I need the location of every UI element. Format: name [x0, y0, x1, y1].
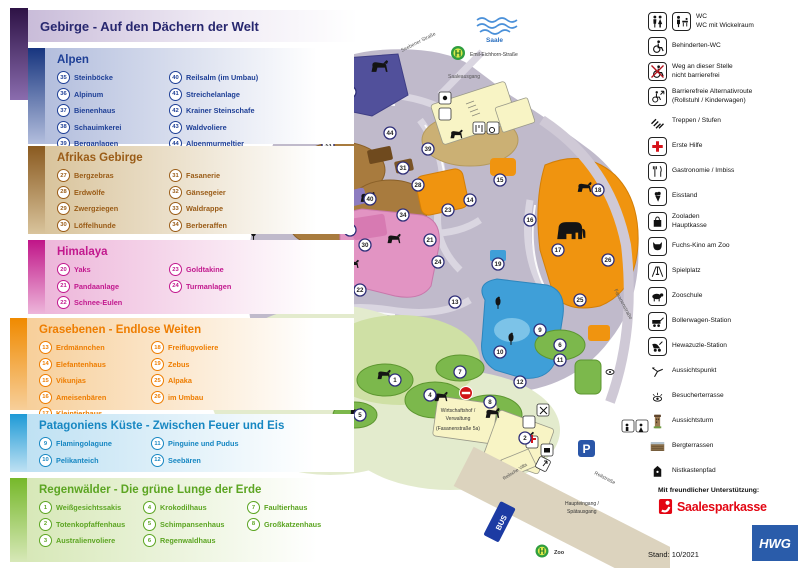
- stroller-icon: [648, 337, 667, 356]
- section-stripe: [28, 240, 45, 314]
- wc-icon: [648, 12, 667, 31]
- sparkasse-s-icon: [658, 498, 673, 515]
- facility-legend-row: Aussichtsturm: [648, 412, 798, 431]
- legend-item-3: 3Australienvoliere: [39, 534, 143, 547]
- section-title: Regenwälder - Die grüne Lunge der Erde: [39, 484, 351, 496]
- map-marker-26: 26: [602, 254, 614, 266]
- svg-text:11: 11: [557, 357, 564, 364]
- svg-text:19: 19: [495, 261, 502, 268]
- facility-legend-label: Zooschule: [672, 292, 702, 300]
- map-marker-9: 9: [534, 324, 546, 336]
- item-label: Erdmännchen: [56, 343, 105, 352]
- item-number-badge: 36: [57, 88, 70, 101]
- svg-text:H: H: [455, 48, 462, 58]
- item-number-badge: 30: [57, 219, 70, 232]
- svg-text:23: 23: [445, 207, 452, 214]
- bus-stop-icon: BUS: [483, 501, 515, 543]
- legend-item-28: 28Erdwölfe: [57, 186, 169, 199]
- map-marker-40: 40: [364, 193, 376, 205]
- facility-legend-label: Aussichtspunkt: [672, 367, 716, 375]
- item-number-badge: 43: [169, 121, 182, 134]
- facility-legend-label: Barrierefreie Alternativroute(Rollstuhl …: [672, 88, 752, 104]
- playground-icon: [648, 262, 667, 281]
- svg-text:17: 17: [555, 247, 562, 254]
- item-number-badge: 4: [143, 501, 156, 514]
- map-marker-19: 19: [492, 258, 504, 270]
- viewpoint-icon: [648, 362, 667, 381]
- svg-text:9: 9: [538, 327, 542, 334]
- item-number-badge: 22: [57, 296, 70, 309]
- svg-text:4: 4: [428, 392, 432, 399]
- item-number-badge: 18: [151, 341, 164, 354]
- section-title: Himalaya: [57, 246, 348, 258]
- first-aid-icon: [648, 137, 667, 156]
- item-label: Ameisenbären: [56, 393, 106, 402]
- map-marker-18: 18: [592, 184, 604, 196]
- item-number-badge: 5: [143, 518, 156, 531]
- wheelchair-icon: [648, 37, 667, 56]
- legend-item-19: 19Zebus: [151, 358, 263, 371]
- item-label: Seebären: [168, 456, 201, 465]
- map-version-stand: Stand: 10/2021: [648, 550, 699, 559]
- svg-text:5: 5: [358, 412, 362, 419]
- svg-text:1: 1: [393, 377, 397, 384]
- item-number-badge: 1: [39, 501, 52, 514]
- legend-item-36: 36Alpinum: [57, 88, 169, 101]
- facility-legend-label: Fuchs-Kino am Zoo: [672, 242, 730, 250]
- legend-item-41: 41Streichelanlage: [169, 88, 281, 101]
- map-marker-25: 25: [574, 294, 586, 306]
- facility-legend-label: Hewazuzle-Station: [672, 342, 727, 350]
- zooschule-icon: [648, 287, 667, 306]
- item-label: Großkatzenhaus: [264, 520, 321, 529]
- item-number-badge: 15: [39, 374, 52, 387]
- map-marker-31: 31: [397, 162, 409, 174]
- item-label: Totenkopfaffenhaus: [56, 520, 125, 529]
- map-marker-22: 22: [354, 284, 366, 296]
- sparkasse-logo: Saalesparkasse: [658, 498, 798, 515]
- svg-text:18: 18: [595, 187, 602, 194]
- item-label: Pandaanlage: [74, 282, 119, 291]
- item-number-badge: 19: [151, 358, 164, 371]
- legend-item-12: 12Seebären: [151, 454, 263, 467]
- map-marker-4: 4: [424, 389, 436, 401]
- item-label: Zwergziegen: [74, 204, 118, 213]
- svg-text:2: 2: [523, 435, 527, 442]
- svg-text:25: 25: [577, 297, 584, 304]
- tram-stop-icon-bottom: H: [536, 545, 549, 558]
- item-number-badge: 2: [39, 518, 52, 531]
- item-number-badge: 9: [39, 437, 52, 450]
- item-label: Regenwaldhaus: [160, 536, 216, 545]
- map-marker-28: 28: [412, 179, 424, 191]
- svg-text:H: H: [539, 547, 545, 556]
- item-number-badge: 10: [39, 454, 52, 467]
- item-label: Pinguine und Pudus: [168, 439, 239, 448]
- legend-item-16: 16Ameisenbären: [39, 391, 151, 404]
- facility-legend-row: Erste Hilfe: [648, 137, 798, 156]
- item-number-badge: 35: [57, 71, 70, 84]
- map-marker-15: 15: [494, 174, 506, 186]
- map-marker-16: 16: [524, 214, 536, 226]
- section-title: Grasebenen - Endlose Weiten: [39, 324, 348, 336]
- facility-legend-row: Nistkastenpfad: [648, 462, 798, 481]
- item-number-badge: 7: [247, 501, 260, 514]
- facility-legend-label: Aussichtsturm: [672, 417, 713, 425]
- item-label: Zebus: [168, 360, 190, 369]
- item-number-badge: 42: [169, 104, 182, 117]
- facility-legend-row: Behinderten-WC: [648, 37, 798, 56]
- section-title: Alpen: [57, 54, 348, 66]
- item-label: Schnee-Eulen: [74, 298, 122, 307]
- wirtschaftshof-label-3: (Fasanenstraße 5a): [436, 426, 480, 432]
- item-label: Erdwölfe: [74, 188, 105, 197]
- map-marker-12: 12: [514, 376, 526, 388]
- svg-text:7: 7: [458, 369, 462, 376]
- map-marker-17: 17: [552, 244, 564, 256]
- map-marker-8: 8: [484, 396, 496, 408]
- item-label: Schimpansenhaus: [160, 520, 224, 529]
- terrace-icon: [648, 387, 667, 406]
- legend-item-29: 29Zwergziegen: [57, 202, 169, 215]
- item-number-badge: 31: [169, 169, 182, 182]
- map-marker-1: 1: [389, 374, 401, 386]
- map-marker-6: 6: [554, 339, 566, 351]
- svg-text:22: 22: [357, 287, 364, 294]
- facility-legend-label: WCWC mit Wickelraum: [696, 13, 754, 29]
- tram-stop-top-label: Emil-Eichhorn-Straße: [470, 52, 518, 58]
- svg-text:P: P: [582, 442, 590, 456]
- no-wheelchair-icon: [648, 62, 667, 81]
- icecream-icon: [648, 187, 667, 206]
- svg-text:12: 12: [517, 379, 524, 386]
- item-number-badge: 24: [169, 280, 182, 293]
- svg-text:15: 15: [497, 177, 504, 184]
- item-number-badge: 33: [169, 202, 182, 215]
- facility-legend-row: ZooladenHauptkasse: [648, 212, 798, 231]
- svg-text:28: 28: [415, 182, 422, 189]
- item-number-badge: 32: [169, 186, 182, 199]
- page-title: Gebirge - Auf den Dächern der Welt: [40, 19, 259, 34]
- main-entrance-label-2: Spätausgang: [567, 509, 597, 515]
- section-card-alpen: Alpen35Steinböcke36Alpinum37Bienenhaus38…: [28, 48, 354, 144]
- facility-legend-label: Nistkastenpfad: [672, 467, 716, 475]
- item-label: Fasanerie: [186, 171, 220, 180]
- legend-item-9: 9Flamingolagune: [39, 437, 151, 450]
- item-number-badge: 23: [169, 263, 182, 276]
- svg-text:30: 30: [362, 242, 369, 249]
- legend-item-40: 40Reilsalm (im Umbau): [169, 71, 281, 84]
- legend-item-35: 35Steinböcke: [57, 71, 169, 84]
- item-number-badge: 29: [57, 202, 70, 215]
- item-label: Streichelanlage: [186, 90, 240, 99]
- item-label: Elefantenhaus: [56, 360, 106, 369]
- header-stripe: [10, 8, 28, 100]
- legend-item-24: 24Turmanlagen: [169, 280, 281, 293]
- item-label: Faultierhaus: [264, 503, 307, 512]
- item-number-badge: 41: [169, 88, 182, 101]
- facility-legend-label: Behinderten-WC: [672, 42, 721, 50]
- section-stripe: [10, 318, 27, 410]
- map-marker-10: 10: [494, 346, 506, 358]
- item-label: Waldvoliere: [186, 123, 227, 132]
- legend-item-11: 11Pinguine und Pudus: [151, 437, 263, 450]
- item-number-badge: 28: [57, 186, 70, 199]
- stairs-icon: [648, 112, 667, 131]
- item-label: Freiflugvoliere: [168, 343, 218, 352]
- wc-wickel-icon: [672, 12, 691, 31]
- exit-top-label: Saaleausgang: [448, 74, 480, 80]
- facility-legend-label: Gastronomie / Imbiss: [672, 167, 734, 175]
- legend-item-1: 1Weißgesichtssakis: [39, 501, 143, 514]
- legend-item-18: 18Freiflugvoliere: [151, 341, 263, 354]
- facility-legend-row: WCWC mit Wickelraum: [648, 12, 798, 31]
- item-number-badge: 3: [39, 534, 52, 547]
- map-marker-5: 5: [354, 409, 366, 421]
- item-number-badge: 16: [39, 391, 52, 404]
- section-card-patagonien: Patagoniens Küste - Zwischen Feuer und E…: [10, 414, 354, 472]
- svg-text:13: 13: [452, 299, 459, 306]
- item-label: Bergzebras: [74, 171, 114, 180]
- legend-item-2: 2Totenkopfaffenhaus: [39, 518, 143, 531]
- section-card-himalaya: Himalaya20Yaks21Pandaanlage22Schnee-Eule…: [28, 240, 354, 314]
- wirtschaftshof-label-1: Wirtschaftshof /: [441, 408, 476, 414]
- item-label: Löffelhunde: [74, 221, 116, 230]
- map-marker-21: 21: [424, 234, 436, 246]
- facility-legend-row: Eisstand: [648, 187, 798, 206]
- map-marker-11: 11: [554, 354, 566, 366]
- saale-label: Saale: [486, 37, 503, 44]
- svg-text:14: 14: [467, 197, 474, 204]
- svg-text:31: 31: [400, 165, 407, 172]
- sparkasse-name: Saalesparkasse: [677, 500, 767, 514]
- map-marker-2: 2: [519, 432, 531, 444]
- section-card-afrika: Afrikas Gebirge27Bergzebras28Erdwölfe29Z…: [28, 146, 354, 234]
- map-marker-44: 44: [384, 127, 396, 139]
- svg-text:39: 39: [425, 146, 432, 153]
- legend-item-7: 7Faultierhaus: [247, 501, 351, 514]
- svg-text:34: 34: [400, 212, 407, 219]
- legend-item-5: 5Schimpansenhaus: [143, 518, 247, 531]
- facility-legend-label: ZooladenHauptkasse: [672, 213, 707, 229]
- svg-text:44: 44: [387, 130, 394, 137]
- legend-item-43: 43Waldvoliere: [169, 121, 281, 134]
- section-title: Afrikas Gebirge: [57, 152, 348, 164]
- item-label: Waldrappe: [186, 204, 223, 213]
- item-label: Bienenhaus: [74, 106, 115, 115]
- section-stripe: [28, 146, 45, 234]
- legend-item-13: 13Erdmännchen: [39, 341, 151, 354]
- legend-item-6: 6Regenwaldhaus: [143, 534, 247, 547]
- legend-item-32: 32Gänsegeier: [169, 186, 281, 199]
- item-label: Goldtakine: [186, 265, 224, 274]
- legend-item-15: 15Vikunjas: [39, 374, 151, 387]
- legend-item-21: 21Pandaanlage: [57, 280, 169, 293]
- facility-legend-row: Barrierefreie Alternativroute(Rollstuhl …: [648, 87, 798, 106]
- item-number-badge: 6: [143, 534, 156, 547]
- item-label: Alpaka: [168, 376, 192, 385]
- map-marker-13: 13: [449, 296, 461, 308]
- item-label: Schauimkerei: [74, 123, 121, 132]
- facility-legend-row: Spielplatz: [648, 262, 798, 281]
- facility-legend-label: Erste Hilfe: [672, 142, 702, 150]
- item-label: Vikunjas: [56, 376, 86, 385]
- legend-item-31: 31Fasanerie: [169, 169, 281, 182]
- facility-legend-row: Bergterrassen: [648, 437, 798, 456]
- legend-item-42: 42Krainer Steinschafe: [169, 104, 281, 117]
- facility-legend-label: Treppen / Stufen: [672, 117, 721, 125]
- item-number-badge: 38: [57, 121, 70, 134]
- facility-legend-row: Besucherterrasse: [648, 387, 798, 406]
- facility-legend-label: Spielplatz: [672, 267, 701, 275]
- terraces-photo-icon: [648, 437, 667, 456]
- section-title: Patagoniens Küste - Zwischen Feuer und E…: [39, 420, 348, 432]
- legend-item-38: 38Schauimkerei: [57, 121, 169, 134]
- svg-text:21: 21: [427, 237, 434, 244]
- facility-legend-label: Bollerwagen-Station: [672, 317, 731, 325]
- facility-legend-row: Hewazuzle-Station: [648, 337, 798, 356]
- facility-legend-row: Treppen / Stufen: [648, 112, 798, 131]
- legend-item-34: 34Berberaffen: [169, 219, 281, 232]
- section-card-regenwaelder: Regenwälder - Die grüne Lunge der Erde1W…: [10, 478, 354, 562]
- facility-legend-label: Besucherterrasse: [672, 392, 724, 400]
- item-number-badge: 34: [169, 219, 182, 232]
- legend-item-27: 27Bergzebras: [57, 169, 169, 182]
- map-marker-23: 23: [442, 204, 454, 216]
- legend-item-14: 14Elefantenhaus: [39, 358, 151, 371]
- item-label: Alpinum: [74, 90, 103, 99]
- item-number-badge: 26: [151, 391, 164, 404]
- map-marker-34: 34: [397, 209, 409, 221]
- hwg-logo: HWG: [752, 525, 798, 561]
- wagon-icon: [648, 312, 667, 331]
- section-stripe: [28, 48, 45, 144]
- legend-item-30: 30Löffelhunde: [57, 219, 169, 232]
- item-label: im Umbau: [168, 393, 203, 402]
- facility-legend-row: Weg an dieser Stellenicht barrierefrei: [648, 62, 798, 81]
- fox-icon: [648, 237, 667, 256]
- item-label: Krokodilhaus: [160, 503, 207, 512]
- alt-route-icon: [648, 87, 667, 106]
- svg-text:16: 16: [527, 217, 534, 224]
- facility-legend-row: Fuchs-Kino am Zoo: [648, 237, 798, 256]
- item-label: Reilsalm (im Umbau): [186, 73, 258, 82]
- item-label: Yaks: [74, 265, 91, 274]
- item-label: Pelikanteich: [56, 456, 99, 465]
- legend-item-22: 22Schnee-Eulen: [57, 296, 169, 309]
- facility-legend-row: Bollerwagen-Station: [648, 312, 798, 331]
- section-card-grasebenen: Grasebenen - Endlose Weiten13Erdmännchen…: [10, 318, 354, 410]
- item-number-badge: 21: [57, 280, 70, 293]
- item-label: Steinböcke: [74, 73, 113, 82]
- item-number-badge: 12: [151, 454, 164, 467]
- item-label: Australienvoliere: [56, 536, 115, 545]
- map-marker-39: 39: [422, 143, 434, 155]
- section-stripe: [10, 414, 27, 472]
- legend-item-8: 8Großkatzenhaus: [247, 518, 351, 531]
- item-label: Turmanlagen: [186, 282, 231, 291]
- item-label: Berberaffen: [186, 221, 227, 230]
- tower-photo-icon: [648, 412, 667, 431]
- svg-text:10: 10: [497, 349, 504, 356]
- item-number-badge: 11: [151, 437, 164, 450]
- item-number-badge: 25: [151, 374, 164, 387]
- map-marker-30: 30: [359, 239, 371, 251]
- item-label: Krainer Steinschafe: [186, 106, 255, 115]
- svg-text:26: 26: [605, 257, 612, 264]
- reilstrasse-label: Reilstraße: [593, 470, 616, 486]
- item-number-badge: 14: [39, 358, 52, 371]
- item-label: Flamingolagune: [56, 439, 112, 448]
- item-number-badge: 37: [57, 104, 70, 117]
- legend-item-25: 25Alpaka: [151, 374, 263, 387]
- legend-item-23: 23Goldtakine: [169, 263, 281, 276]
- facility-legend-row: Gastronomie / Imbiss: [648, 162, 798, 181]
- facility-legend-label: Bergterrassen: [672, 442, 713, 450]
- legend-item-37: 37Bienenhaus: [57, 104, 169, 117]
- nestbox-icon: [648, 462, 667, 481]
- item-number-badge: 40: [169, 71, 182, 84]
- svg-text:40: 40: [367, 196, 374, 203]
- svg-text:8: 8: [488, 399, 492, 406]
- item-number-badge: 8: [247, 518, 260, 531]
- zoo-map-page: P BUS H H Saale Seebener Straße Emil-Eic…: [0, 0, 800, 568]
- svg-text:24: 24: [435, 259, 442, 266]
- parking-icon: P: [578, 440, 595, 457]
- tram-stop-icon-top: H: [451, 46, 465, 60]
- legend-item-26: 26im Umbau: [151, 391, 263, 404]
- cutlery-icon: [648, 162, 667, 181]
- saale-river-waves: [477, 18, 517, 34]
- map-marker-7: 7: [454, 366, 466, 378]
- item-label: Gänsegeier: [186, 188, 226, 197]
- shop-icon: [648, 212, 667, 231]
- section-stripe: [10, 478, 27, 562]
- map-marker-24: 24: [432, 256, 444, 268]
- item-number-badge: 13: [39, 341, 52, 354]
- legend-item-10: 10Pelikanteich: [39, 454, 151, 467]
- page-header: Gebirge - Auf den Dächern der Welt: [28, 10, 358, 42]
- main-entrance-label-1: Haupteingang /: [565, 501, 600, 507]
- item-label: Weißgesichtssakis: [56, 503, 121, 512]
- facility-legend: WCWC mit WickelraumBehinderten-WCWeg an …: [648, 12, 798, 560]
- facility-legend-row: Aussichtspunkt: [648, 362, 798, 381]
- legend-item-20: 20Yaks: [57, 263, 169, 276]
- legend-item-33: 33Waldrappe: [169, 202, 281, 215]
- svg-text:6: 6: [558, 342, 562, 349]
- legend-item-4: 4Krokodilhaus: [143, 501, 247, 514]
- facility-legend-row: Zooschule: [648, 287, 798, 306]
- sponsor-support-text: Mit freundlicher Unterstützung:: [658, 487, 798, 494]
- facility-legend-label: Weg an dieser Stellenicht barrierefrei: [672, 63, 733, 79]
- wirtschaftshof-label-2: Verwaltung: [446, 416, 471, 422]
- facility-legend-label: Eisstand: [672, 192, 697, 200]
- item-number-badge: 27: [57, 169, 70, 182]
- item-number-badge: 20: [57, 263, 70, 276]
- map-marker-14: 14: [464, 194, 476, 206]
- tram-stop-bottom-label: Zoo: [554, 550, 565, 556]
